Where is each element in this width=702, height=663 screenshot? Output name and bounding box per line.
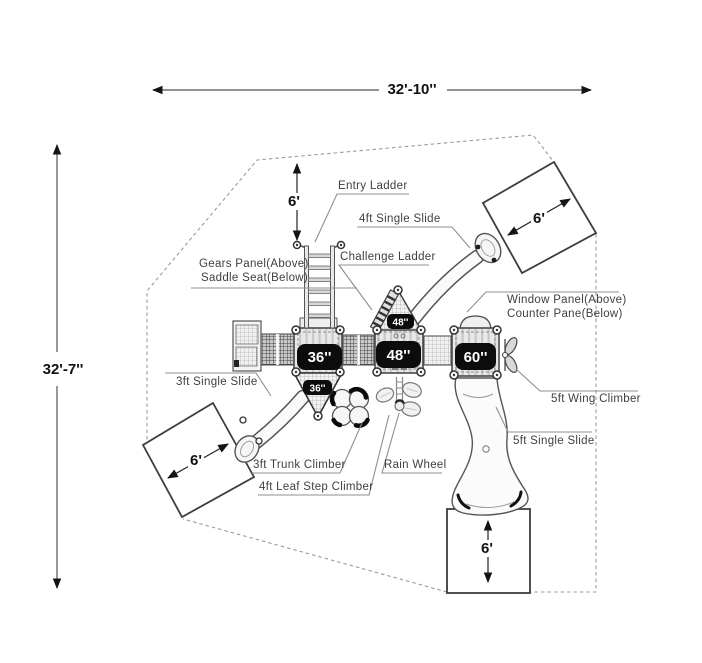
trunk-climber-label: 3ft Trunk Climber (253, 459, 346, 471)
window-panel-arc (460, 316, 491, 329)
overall-height-dimension-label: 32'-7'' (36, 361, 90, 378)
gears-panel-label: Gears Panel(Above) (199, 258, 309, 270)
five-ft-slide-leader (496, 407, 592, 432)
badge-36-small: 36'' (310, 384, 326, 395)
four-ft-single-slide-label: 4ft Single Slide (359, 213, 441, 225)
wing-climber (503, 336, 520, 374)
bottom-left-zone-label: 6' (188, 452, 204, 469)
three-ft-single-slide (230, 397, 303, 467)
leaf-step-climber-label: 4ft Leaf Step Climber (259, 481, 373, 493)
leaf-step-climber (374, 377, 423, 418)
badge-36: 36'' (308, 349, 332, 366)
bridge-grid-right (424, 336, 451, 365)
four-ft-single-slide (413, 229, 506, 320)
top-right-zone-label: 6' (531, 210, 547, 227)
four-ft-slide-leader (357, 227, 470, 248)
plan-drawing: 36'' 48'' 60'' 48'' 36'' (0, 0, 702, 663)
playground-plan: 36'' 48'' 60'' 48'' 36'' 32'-10'' 32'-7'… (0, 0, 702, 663)
entry-clearance-label: 6' (286, 193, 302, 210)
entry-ladder-label: Entry Ladder (338, 180, 407, 192)
rain-wheel-label: Rain Wheel (384, 459, 446, 471)
bridge-mesh-left (261, 334, 294, 365)
saddle-seat-label: Saddle Seat(Below) (201, 272, 308, 284)
challenge-ladder-label: Challenge Ladder (340, 251, 436, 263)
badge-48-small: 48'' (393, 318, 409, 329)
wing-climber-label: 5ft Wing Climber (551, 393, 641, 405)
badge-60: 60'' (464, 349, 488, 366)
window-panel-label: Window Panel(Above) (507, 294, 626, 306)
wing-climber-leader (516, 369, 638, 391)
trunk-climber (332, 389, 369, 426)
rain-wheel (395, 400, 404, 410)
five-ft-single-slide-label: 5ft Single Slide (513, 435, 595, 447)
counter-pane-label: Counter Pane(Below) (507, 308, 623, 320)
bridge-mesh-mid (343, 335, 374, 365)
three-ft-single-slide-label: 3ft Single Slide (176, 376, 258, 388)
gears-panel-box (233, 321, 261, 371)
bottom-zone-label: 6' (479, 540, 495, 557)
badge-48: 48'' (387, 347, 411, 364)
overall-width-dimension-label: 32'-10'' (378, 81, 446, 98)
